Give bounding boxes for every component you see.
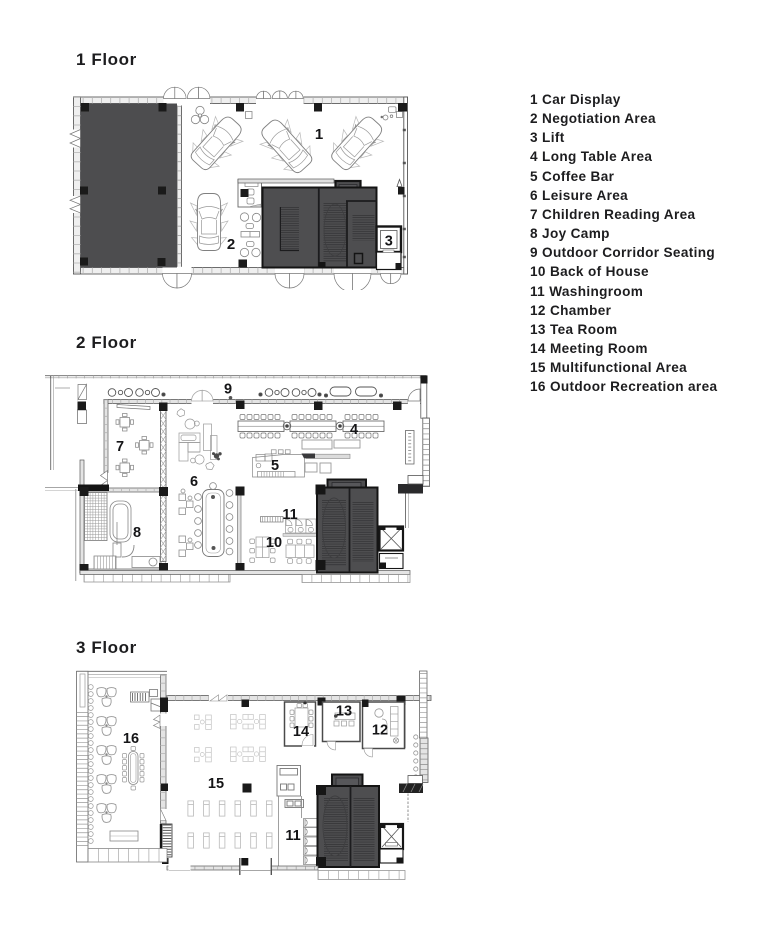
- svg-text:16: 16: [123, 731, 139, 747]
- svg-text:7: 7: [116, 439, 124, 455]
- svg-text:1: 1: [315, 126, 323, 143]
- svg-text:8: 8: [133, 525, 141, 541]
- svg-text:6: 6: [190, 474, 198, 490]
- svg-text:14: 14: [293, 724, 309, 740]
- svg-text:5: 5: [271, 458, 279, 474]
- svg-text:2: 2: [227, 236, 235, 253]
- svg-text:10: 10: [266, 535, 282, 551]
- svg-text:11: 11: [282, 507, 297, 523]
- svg-text:12: 12: [372, 723, 388, 739]
- svg-text:3: 3: [385, 234, 393, 250]
- svg-text:11: 11: [285, 828, 300, 844]
- svg-text:15: 15: [208, 776, 224, 792]
- svg-text:9: 9: [224, 382, 232, 398]
- svg-text:13: 13: [336, 704, 352, 720]
- svg-text:4: 4: [350, 422, 358, 438]
